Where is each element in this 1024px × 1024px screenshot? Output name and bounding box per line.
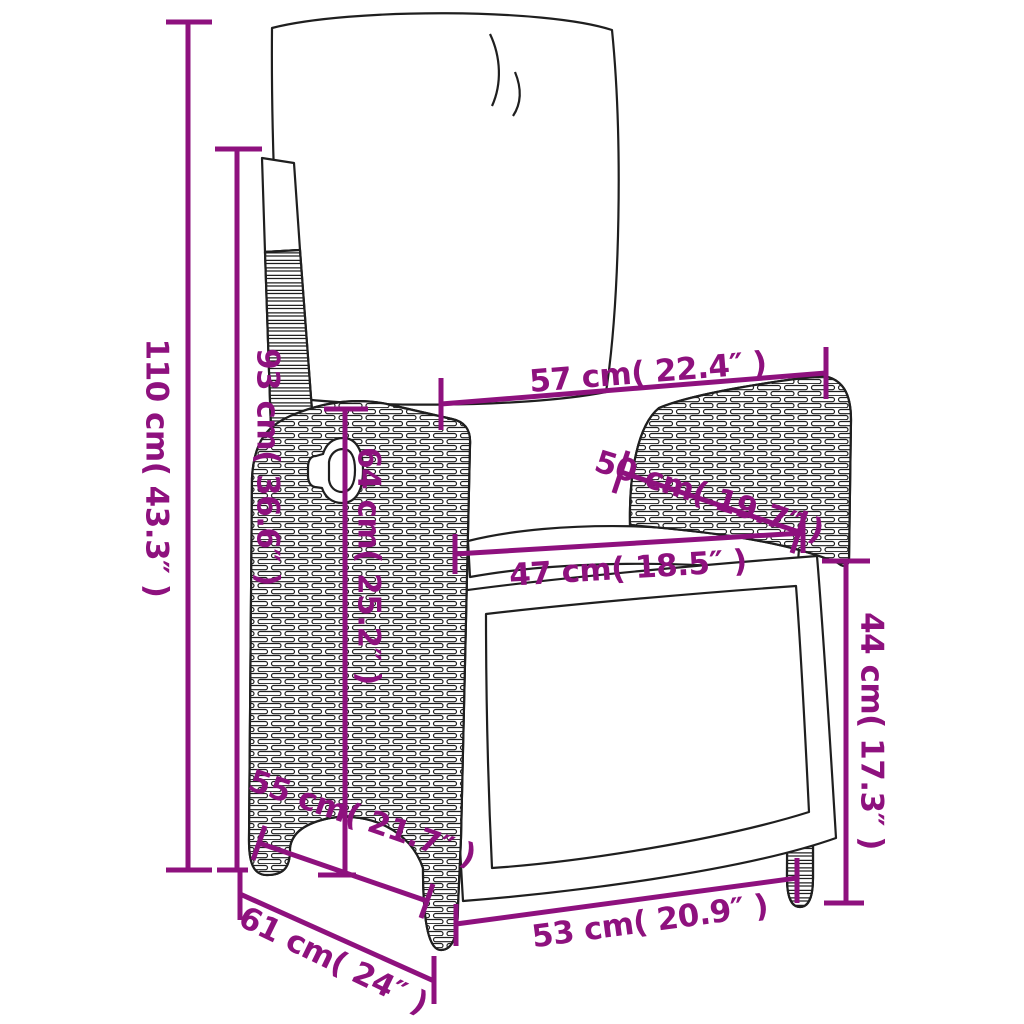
dimension-label-back-height: 93 cm( 36.6″ ) xyxy=(252,348,283,586)
front-panel xyxy=(453,556,836,901)
dimension-label-seat-height: 44 cm( 17.3″ ) xyxy=(856,612,887,850)
dimension-label-side-height: 64 cm( 25.2″ ) xyxy=(353,447,384,685)
headrest-cushion xyxy=(272,13,619,404)
dimension-label-total-height: 110 cm( 43.3″ ) xyxy=(141,339,172,598)
dimension-diagram: 110 cm( 43.3″ ) 93 cm( 36.6″ ) 57 cm( 22… xyxy=(0,0,1024,1024)
